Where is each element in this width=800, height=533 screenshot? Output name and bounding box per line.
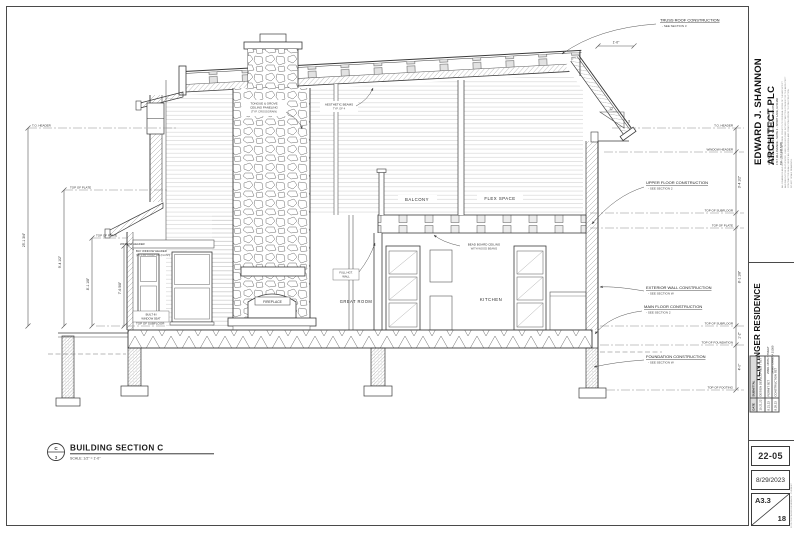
drawing-title-group: C 3 BUILDING SECTION C SCALE: 1/2" = 1'-…: [48, 444, 215, 461]
drawing-title: BUILDING SECTION C: [70, 444, 164, 453]
callout-exterior-wall-2: - SEE SECTION W: [648, 292, 674, 296]
dim-right-d: 4'-0": [738, 363, 742, 371]
level-label: TOP OF PLATE: [712, 224, 733, 228]
callout-foundation: FOUNDATION CONSTRUCTION: [646, 354, 706, 359]
sheet-count: 18: [778, 514, 786, 523]
sheet-number-box: A3.3 18: [751, 493, 790, 526]
section-symbol-number: 3: [55, 455, 58, 460]
submittal-row: 8.21.23PERMIT SET: [765, 356, 772, 412]
architect-credential: LICENSED ARCHITECT - STATE OF IOWA: [768, 113, 771, 165]
title-block-divider: [749, 440, 794, 441]
callout-truss-roof-2: - SEE SECTION 3: [662, 24, 687, 28]
dim-left-b: 8'-1 1/8": [86, 277, 90, 290]
callout-bay-header-2: (W) 1 3/4" x 9 1/2" LVL (FLUSH): [136, 254, 170, 257]
submittal-table: DATE SUBMITTAL 10.21.22DESIGN DEVELOPMEN…: [750, 356, 780, 413]
project-number: 22-05: [751, 446, 790, 466]
level-label: TOP OF SUBFLOOR: [705, 209, 734, 213]
fireplace-label: FIREPLACE: [263, 300, 283, 304]
section-symbol-letter: C: [54, 446, 58, 451]
file-path: 22-05 TENTINGER RESIDENCE - CURRENT: [791, 394, 794, 528]
main-floor-band: [128, 330, 592, 348]
slope-rise: 3: [628, 120, 630, 124]
sheet-date: 8/29/2023: [751, 470, 790, 490]
dim-left-a: 9'-4 1/2": [58, 255, 62, 268]
architect-contact: 1717 HILL AVENUE - SUITE 2 - SPIRIT LAKE…: [776, 98, 779, 165]
building-section-drawing: FIREPLACE: [0, 0, 748, 533]
drawing-scale: SCALE: 1/2" = 1'-0": [70, 457, 101, 461]
dim-right-a: 3'-4 1/2": [738, 175, 742, 188]
callout-bay-header: BAY WINDOW HEADER: [136, 249, 167, 253]
callout-bead-board-2: WITH WOOD BEAMS: [471, 247, 498, 251]
dim-right-b: 8'-1 1/8": [738, 270, 742, 283]
level-label: TOP OF PLATE: [70, 186, 91, 190]
callout-beams-2: TYP. OF 4: [333, 107, 346, 111]
callout-exterior-wall: EXTERIOR WALL CONSTRUCTION: [646, 285, 712, 290]
callout-foundation-2: - SEE SECTION W: [648, 361, 674, 365]
callout-bead-board: BEAD BOARD CEILING: [468, 243, 501, 247]
submittal-header-date: DATE: [750, 398, 757, 412]
title-block-divider: [749, 262, 794, 263]
level-label: WINDOW HEADER: [707, 148, 734, 152]
dim-overall: 25'-1 3/4": [22, 232, 26, 247]
callout-full-height-2: WALL: [342, 275, 350, 279]
dim-right-c: 1'-2": [738, 331, 742, 339]
callout-tg-ceiling-3: (TYP. CROSSGRAIN): [251, 110, 277, 114]
callout-upper-floor-2: - SEE SECTION 2: [648, 187, 673, 191]
submittal-row: 8.29.23CONSTRUCTION SET: [772, 356, 779, 412]
room-label-kitchen: KITCHEN: [480, 297, 502, 302]
left-fascia: [179, 66, 186, 95]
callout-window-seat-2: WINDOW SEAT: [141, 317, 161, 321]
level-label: TOP OF SUBFLOOR: [705, 322, 734, 326]
callout-beams: AESTHETIC BEAMS: [325, 103, 353, 107]
callout-window-header: WINDOW HEADER: [120, 242, 145, 246]
upper-floor: [378, 215, 586, 233]
callout-upper-floor: UPPER FLOOR CONSTRUCTION: [646, 180, 708, 185]
callout-main-floor: MAIN FLOOR CONSTRUCTION: [644, 304, 702, 309]
dim-overhang: 1'-0": [613, 41, 621, 45]
level-label: T.O. HEADER: [714, 124, 734, 128]
room-label-flex-space: FLEX SPACE: [484, 196, 515, 201]
level-label: TOP OF FOUNDATION: [701, 341, 733, 345]
level-label: T.O. HEADER: [32, 124, 52, 128]
drawing-sheet: FIREPLACE: [0, 0, 800, 533]
room-label-great-room: GREAT ROOM: [340, 299, 373, 304]
callout-window-seat: BUILT-IN: [146, 313, 157, 317]
callout-full-height: FULL HGT.: [339, 271, 353, 275]
room-label-balcony: BALCONY: [405, 197, 429, 202]
callout-truss-roof: TRUSS ROOF CONSTRUCTION: [660, 18, 720, 23]
frieze-board: [591, 132, 598, 142]
level-label: TOP OF PLATE: [96, 234, 117, 238]
submittal-header-label: SUBMITTAL: [750, 356, 757, 398]
slope-run: 12: [609, 107, 613, 111]
callout-tg-ceiling-2: CEILING PANELING: [250, 106, 278, 110]
callout-main-floor-2: - SEE SECTION 2: [646, 311, 671, 315]
architect-credential: LICENSED ARCHITECT - STATE OF MINNESOTA: [772, 104, 775, 165]
level-label: TOP OF FOOTING: [707, 386, 733, 390]
submittal-row: 10.21.22DESIGN DEVELOPMENT SET: [757, 356, 764, 412]
dim-left-c: 7'-6 5/8": [118, 281, 122, 294]
architect-fine-print: ALL DRAWINGS AND WRITTEN MATERIAL HEREIN…: [782, 58, 794, 188]
title-block: EDWARD J. SHANNON ARCHITECT PLC LICENSED…: [748, 6, 794, 526]
sheet-number: A3.3: [755, 496, 771, 505]
